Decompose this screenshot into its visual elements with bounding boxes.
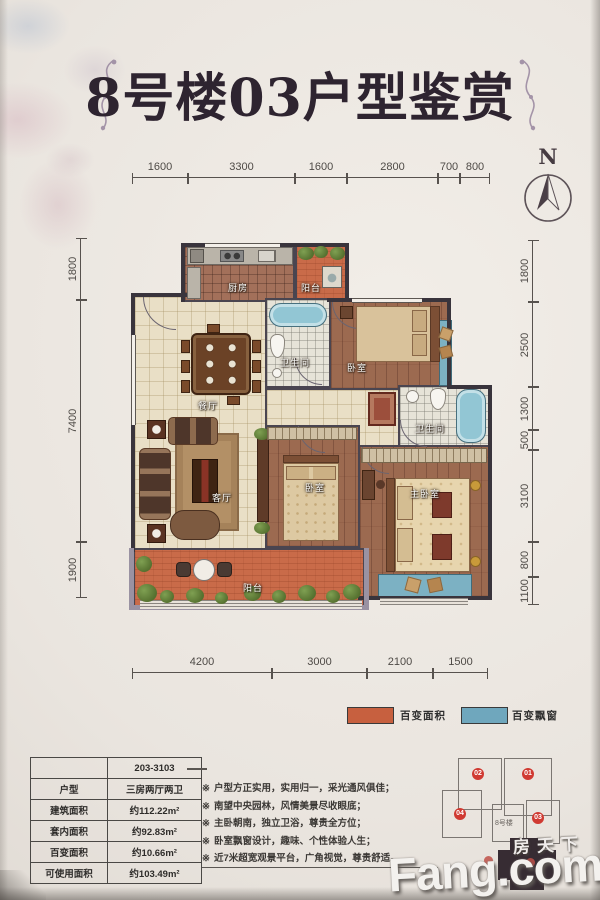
bullet-marker: ※ xyxy=(202,801,210,812)
bay-cushion xyxy=(427,577,444,594)
legend-swatch-changeable-area xyxy=(347,707,394,724)
dim-right-5: 3100 xyxy=(532,450,533,542)
dim-right-4: 500 xyxy=(532,430,533,450)
chair xyxy=(207,324,220,333)
floorplan-page: 8号楼03户型鉴赏 N 1600 3300 1600 2800 700 800 … xyxy=(0,0,600,900)
window xyxy=(352,298,422,303)
site-watermark: 房天下 Fang.com xyxy=(386,828,600,900)
dim-bottom-3: 2100 xyxy=(367,672,433,673)
table-cell-empty xyxy=(31,758,108,779)
compass-arrow-icon xyxy=(512,168,584,228)
bullet-marker: ※ xyxy=(202,783,210,794)
plant xyxy=(215,592,228,604)
vine-ornament-icon xyxy=(506,56,552,134)
dining-table xyxy=(191,333,251,395)
dim-left-2: 7400 xyxy=(80,300,81,542)
unit-badge: 01 xyxy=(522,768,534,780)
unit-badge: 03 xyxy=(532,812,544,824)
dim-right-6: 800 xyxy=(532,542,533,577)
bed-cushion xyxy=(432,534,452,560)
plant xyxy=(272,590,286,603)
watermark-logo: Fang.com xyxy=(387,836,600,900)
legend-swatch-bay-window xyxy=(461,707,508,724)
wall-balcony xyxy=(364,548,369,608)
bath-sink xyxy=(406,390,419,403)
legend-label-bay-window: 百变飘窗 xyxy=(512,708,558,723)
feature-item: ※户型方正实用，实用归一，采光通风俱佳； xyxy=(202,780,454,798)
label-kitchen: 厨房 xyxy=(228,281,248,294)
dim-left-3: 1900 xyxy=(80,542,81,598)
row-label: 建筑面积 xyxy=(31,800,108,821)
pillow xyxy=(412,310,427,332)
row-value: 约92.83m² xyxy=(108,821,202,842)
balcony-table xyxy=(193,559,215,581)
wall xyxy=(345,243,349,302)
bath-sink xyxy=(272,368,282,378)
photo-edge xyxy=(590,0,600,900)
loveseat-sofa xyxy=(168,417,218,445)
long-sofa xyxy=(139,448,171,520)
bay-railing xyxy=(380,598,468,605)
unit-info-table: 203-3103 户型 三房两厅两卫 建筑面积 约112.22m² 套内面积 约… xyxy=(30,757,202,884)
window xyxy=(131,335,136,425)
feature-item: ※南望中央园林，风情美景尽收眼底； xyxy=(202,798,454,816)
desk xyxy=(362,470,375,500)
dim-top-4: 2800 xyxy=(347,177,438,178)
plant xyxy=(137,584,157,602)
dim-right-7: 1100 xyxy=(532,577,533,605)
dim-right-1: 1800 xyxy=(532,240,533,302)
dim-top-3: 1600 xyxy=(295,177,347,178)
divider-dash xyxy=(187,768,207,770)
row-label: 百变面积 xyxy=(31,842,108,863)
row-label: 户型 xyxy=(31,779,108,800)
chair xyxy=(181,340,190,353)
plant xyxy=(254,522,270,534)
dim-bottom-4: 1500 xyxy=(433,672,488,673)
plant xyxy=(298,247,314,260)
plant xyxy=(186,588,204,603)
washing-machine xyxy=(322,266,342,288)
pillow xyxy=(397,528,413,562)
plant xyxy=(160,590,174,603)
chair xyxy=(181,360,190,373)
kitchen-sink xyxy=(258,250,276,262)
side-table-lamp xyxy=(147,420,166,439)
chair xyxy=(252,340,261,353)
row-value: 三房两厅两卫 xyxy=(108,779,202,800)
dim-top-2: 3300 xyxy=(188,177,295,178)
bedside-lamp xyxy=(470,480,481,491)
photo-edge xyxy=(0,0,8,900)
chair xyxy=(252,360,261,373)
wall xyxy=(488,385,492,600)
label-balcony-bottom: 阳台 xyxy=(243,581,263,594)
bathtub xyxy=(456,389,486,443)
feature-item: ※主卧朝南，独立卫浴，尊贵全方位； xyxy=(202,815,454,833)
label-bedroom-top: 卧室 xyxy=(347,361,367,374)
label-living: 客厅 xyxy=(212,491,232,504)
north-compass: N xyxy=(512,146,584,234)
nightstand xyxy=(340,306,353,319)
north-label: N xyxy=(512,146,584,168)
bed-headboard xyxy=(386,478,395,572)
rug xyxy=(368,392,396,426)
label-master-bedroom: 主卧室 xyxy=(410,487,440,500)
plant xyxy=(343,584,361,600)
balcony-chair xyxy=(176,562,191,577)
label-bathroom-top: 卫生间 xyxy=(280,356,310,369)
dim-top-5: 700 xyxy=(438,177,460,178)
label-balcony-top: 阳台 xyxy=(301,281,321,294)
plant xyxy=(314,246,328,258)
bullet-marker: ※ xyxy=(202,818,210,829)
row-value: 约112.22m² xyxy=(108,800,202,821)
chair xyxy=(252,380,261,393)
row-value: 约10.66m² xyxy=(108,842,202,863)
wardrobe xyxy=(267,427,357,440)
dim-right-2: 2500 xyxy=(532,302,533,387)
pillows xyxy=(286,466,336,480)
wardrobe xyxy=(361,448,487,463)
key-plan-building-label: 8号楼 xyxy=(495,818,513,828)
bathtub xyxy=(269,303,327,327)
bedside-lamp xyxy=(470,556,481,567)
dim-top-6: 800 xyxy=(460,177,490,178)
bed-headboard xyxy=(283,455,339,463)
chair xyxy=(181,380,190,393)
legend-label-changeable-area: 百变面积 xyxy=(400,708,446,723)
photo-edge xyxy=(0,870,46,900)
dim-bottom-2: 3000 xyxy=(272,672,367,673)
dim-top-1: 1600 xyxy=(132,177,188,178)
plant xyxy=(326,590,340,603)
plant xyxy=(136,556,152,572)
bullet-marker: ※ xyxy=(202,836,210,847)
fridge xyxy=(190,249,204,263)
label-bedroom-mid: 卧室 xyxy=(305,481,325,494)
desk-chair xyxy=(376,480,385,489)
plant xyxy=(330,247,345,260)
dim-bottom-1: 4200 xyxy=(132,672,272,673)
curved-sofa xyxy=(170,510,220,540)
dim-left-1: 1800 xyxy=(80,238,81,300)
kitchen-side-counter xyxy=(187,267,201,299)
wall-balcony xyxy=(129,548,134,610)
row-label: 套内面积 xyxy=(31,821,108,842)
unit-badge: 02 xyxy=(472,768,484,780)
dim-right-3: 1300 xyxy=(532,387,533,430)
row-value: 约103.49m² xyxy=(108,863,202,884)
side-table-lamp xyxy=(147,524,166,543)
stove-burners xyxy=(220,250,244,262)
pillow xyxy=(412,334,427,356)
balcony-chair xyxy=(217,562,232,577)
tv-divider-pillar xyxy=(257,438,269,522)
label-dining: 餐厅 xyxy=(198,399,218,412)
plant xyxy=(298,585,316,601)
bullet-marker: ※ xyxy=(202,853,210,864)
chair xyxy=(227,396,240,405)
label-bathroom-mid: 卫生间 xyxy=(415,422,445,435)
unit-badge: 04 xyxy=(454,808,466,820)
